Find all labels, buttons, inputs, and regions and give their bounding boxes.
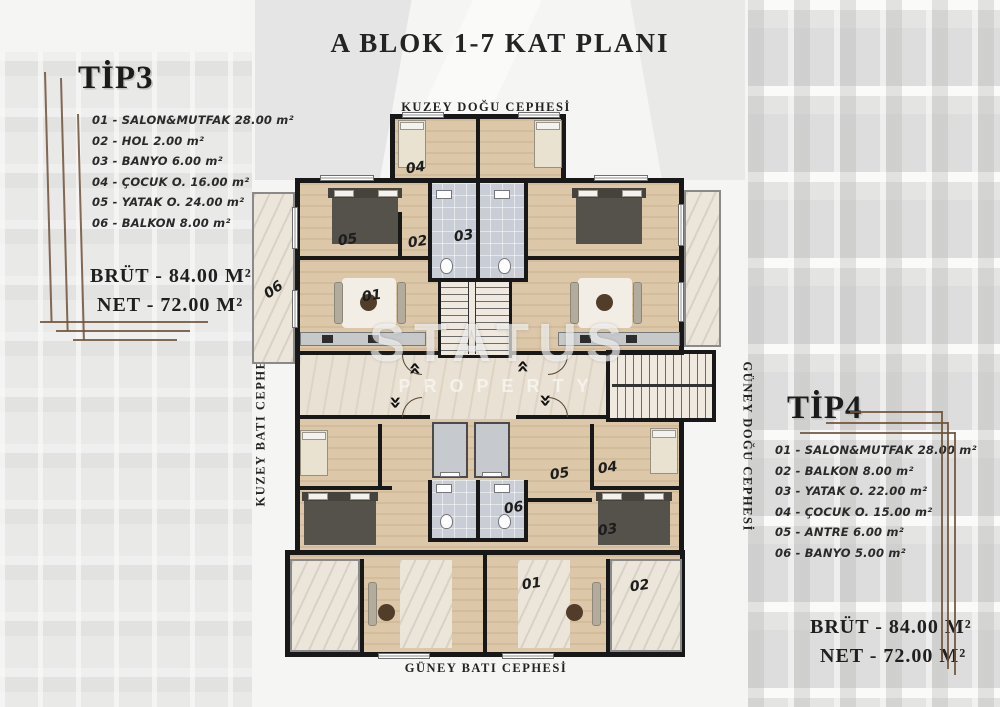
wall <box>606 559 610 652</box>
bed-pillow <box>350 493 370 500</box>
toilet <box>498 258 511 274</box>
wall <box>528 498 592 502</box>
room-number-yatak-tip3: 05 <box>337 231 359 250</box>
leader-line <box>954 432 956 675</box>
kitchen-runner-right <box>518 560 570 648</box>
double-bed <box>576 198 642 244</box>
room-number-balkon-tip4: 02 <box>629 577 651 596</box>
wall <box>476 183 480 282</box>
bed-pillow <box>308 493 328 500</box>
wall <box>590 424 594 490</box>
leader-line <box>800 432 955 434</box>
sofa <box>368 582 377 626</box>
watermark-line2: PROPERTY <box>320 376 680 397</box>
tip3-title: TİP3 <box>78 60 288 97</box>
wall <box>483 555 487 655</box>
leader-line <box>850 411 942 413</box>
window <box>678 204 684 246</box>
tip4-net: NET - 72.00 M² <box>820 645 966 668</box>
bed-pillow <box>334 190 354 197</box>
kitchen-runner-left <box>400 560 452 648</box>
bed-pillow <box>644 493 664 500</box>
facade-label-south-east: GÜNEY DOĞU CEPHESİ <box>740 362 755 522</box>
tip3-brut: BRÜT - 84.00 M² <box>90 265 252 288</box>
room-number-salon-tip4: 01 <box>521 575 543 594</box>
toilet <box>440 258 453 274</box>
sofa <box>592 582 601 626</box>
wall <box>428 480 432 542</box>
window <box>292 207 298 249</box>
bathroom-sink <box>436 484 452 493</box>
leader-line <box>40 321 208 323</box>
window <box>502 653 554 659</box>
bathroom-sink <box>494 190 510 199</box>
bed-pillow <box>536 122 560 130</box>
room-balkon-tip3 <box>252 192 295 364</box>
window <box>320 175 374 181</box>
wall <box>428 278 528 282</box>
room-number-antre-tip4: 05 <box>549 465 571 484</box>
room-number-banyo-tip4: 06 <box>503 499 525 518</box>
window <box>378 653 430 659</box>
room-number-banyo-tip3: 03 <box>453 227 475 246</box>
wall <box>360 559 364 652</box>
elevator-left <box>432 422 468 478</box>
window <box>594 175 648 181</box>
leader-line <box>947 422 949 669</box>
wall <box>398 212 402 260</box>
bed-pillow <box>652 430 676 438</box>
round-table <box>566 604 583 621</box>
wall <box>524 480 528 542</box>
page-title: A BLOK 1-7 KAT PLANI <box>280 28 720 59</box>
wall <box>524 256 684 260</box>
tip3-net: NET - 72.00 M² <box>97 294 243 317</box>
background-building-right <box>748 0 1000 707</box>
room-number-hol-tip3: 02 <box>407 233 429 252</box>
elevator-door <box>440 472 460 477</box>
window <box>292 290 298 328</box>
floor-plan-page: A BLOK 1-7 KAT PLANI KUZEY DOĞU CEPHESİ … <box>0 0 1000 707</box>
room-balkon-tip4 <box>610 559 682 652</box>
bed-pillow <box>378 190 398 197</box>
wall <box>428 183 432 282</box>
bed-pillow <box>302 432 326 440</box>
bathroom-sink <box>494 484 510 493</box>
room-number-salon-tip3: 01 <box>361 287 383 306</box>
bed-pillow <box>578 190 598 197</box>
round-table <box>596 294 613 311</box>
room-balkon-top-right <box>684 190 721 347</box>
elevator-door <box>482 472 502 477</box>
room-number-cocuk-tip3: 04 <box>405 159 427 178</box>
bed-pillow <box>622 190 642 197</box>
leader-line <box>73 339 177 341</box>
double-bed <box>304 501 376 545</box>
leader-line <box>826 422 948 424</box>
wall <box>378 424 382 490</box>
bed-pillow <box>602 493 622 500</box>
bed-pillow <box>400 122 424 130</box>
room-number-yatak-tip4: 03 <box>597 521 619 540</box>
leader-line <box>941 411 943 659</box>
room-balkon-bottom-left <box>290 559 360 652</box>
window <box>402 112 444 118</box>
wall <box>295 256 430 260</box>
leader-line <box>56 330 190 332</box>
round-table <box>378 604 395 621</box>
watermark-line1: STATUS <box>320 312 680 374</box>
room-number-cocuk-tip4: 04 <box>597 459 619 478</box>
down-chevrons-icon: « <box>384 396 405 410</box>
wall <box>476 480 480 542</box>
wall <box>428 538 528 542</box>
wall <box>590 486 684 490</box>
wall <box>476 114 480 183</box>
watermark: STATUS PROPERTY <box>320 312 680 397</box>
bathroom-sink <box>436 190 452 199</box>
window <box>518 112 560 118</box>
wall <box>295 486 392 490</box>
toilet <box>440 514 453 529</box>
elevator-right <box>474 422 510 478</box>
wall <box>524 183 528 282</box>
